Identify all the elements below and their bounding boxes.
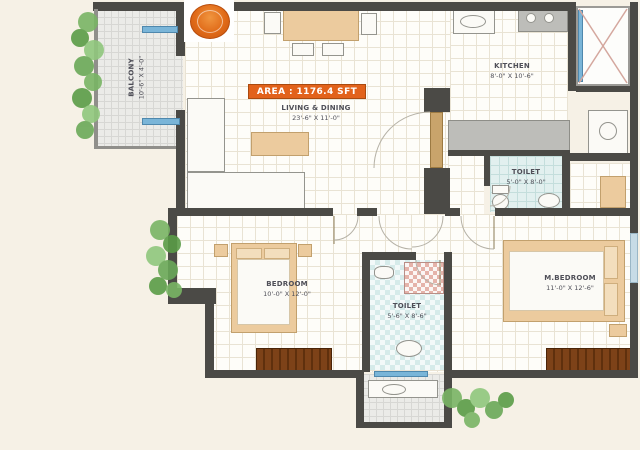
room-dims: 5'-6" X 8'-6" bbox=[368, 312, 446, 321]
wall-under-utility bbox=[562, 153, 630, 161]
foyer-floor bbox=[448, 152, 484, 214]
balcony-wall-left bbox=[94, 9, 98, 148]
room-name: LIVING & DINING bbox=[250, 104, 382, 114]
wall-top bbox=[93, 2, 576, 11]
wall-mid-2 bbox=[357, 208, 377, 216]
wall-utility-left bbox=[356, 370, 364, 428]
utility-sink bbox=[382, 384, 406, 395]
shaft-window bbox=[578, 10, 583, 82]
pillow bbox=[236, 248, 262, 259]
wall-utility-right bbox=[444, 370, 452, 428]
room-label-toilet1: TOILET 5'-0" X 8'-0" bbox=[486, 168, 566, 187]
room-dims: 10'-6" X 4'-0" bbox=[137, 30, 146, 124]
wall-mid-3 bbox=[445, 208, 460, 216]
room-label-master-bedroom: M.BEDROOM 11'-0" X 12'-6" bbox=[505, 274, 635, 293]
wall-mid-4 bbox=[495, 208, 638, 216]
wall-bottom-2 bbox=[452, 370, 638, 378]
kitchen-counter bbox=[448, 120, 570, 152]
room-label-balcony: BALCONY 10'-6" X 4'-0" bbox=[128, 30, 147, 124]
sofa-vertical bbox=[187, 98, 225, 172]
wall-right-outer bbox=[630, 2, 638, 376]
balcony-wall-bottom bbox=[94, 146, 184, 149]
wall-mid-1 bbox=[176, 208, 333, 216]
kitchen-sink-bowl bbox=[460, 15, 486, 28]
wall-bed1-left-upper bbox=[168, 208, 177, 298]
balcony-window bbox=[142, 118, 180, 125]
wall-bottom-1 bbox=[205, 370, 358, 378]
washbasin bbox=[538, 193, 560, 208]
bedside-table bbox=[609, 324, 627, 337]
stove-burner bbox=[544, 13, 554, 23]
wall-entry-top bbox=[424, 88, 450, 112]
coffee-table bbox=[251, 132, 309, 156]
room-label-toilet2: TOILET 5'-6" X 8'-6" bbox=[368, 302, 446, 321]
room-label-kitchen: KITCHEN 8'-0" X 10'-6" bbox=[462, 62, 562, 81]
floor-plan: AREA : 1176.4 SFT LIVING & DINING 23'-6"… bbox=[0, 0, 640, 450]
wall-living-left-bottom bbox=[176, 110, 185, 216]
room-dims: 8'-0" X 10'-6" bbox=[462, 72, 562, 81]
room-dims: 5'-0" X 8'-0" bbox=[486, 178, 566, 187]
balcony-window bbox=[142, 26, 178, 33]
dining-chair bbox=[361, 13, 377, 35]
duct-shaft bbox=[576, 6, 630, 86]
dining-chair bbox=[264, 12, 281, 34]
room-name: KITCHEN bbox=[462, 62, 562, 72]
room-name: TOILET bbox=[486, 168, 566, 178]
dining-chair bbox=[322, 43, 344, 56]
wall-bed1-left-lower bbox=[205, 302, 214, 374]
bedside-table bbox=[298, 244, 312, 257]
room-dims: 10'-0" X 12'-0" bbox=[237, 290, 337, 299]
washbasin bbox=[374, 266, 394, 279]
room-label-living: LIVING & DINING 23'-6" X 11'-0" bbox=[250, 104, 382, 123]
wall-under-counter bbox=[448, 150, 570, 156]
entry-door-leaf bbox=[430, 112, 443, 168]
wall-kitchen-right bbox=[568, 2, 576, 91]
dining-chair bbox=[292, 43, 314, 56]
room-dims: 23'-6" X 11'-0" bbox=[250, 114, 382, 123]
area-banner: AREA : 1176.4 SFT bbox=[248, 84, 366, 99]
dresser bbox=[600, 176, 626, 208]
room-name: BEDROOM bbox=[237, 280, 337, 290]
stove-burner bbox=[526, 13, 536, 23]
wall-toilet2-top bbox=[362, 252, 416, 260]
bedside-table bbox=[214, 244, 228, 257]
shower-area bbox=[404, 262, 444, 294]
room-name: BALCONY bbox=[128, 30, 138, 124]
room-name: TOILET bbox=[368, 302, 446, 312]
wall-utility-bottom bbox=[356, 422, 452, 428]
pillow bbox=[264, 248, 290, 259]
room-name: M.BEDROOM bbox=[505, 274, 635, 284]
washing-machine-door bbox=[599, 122, 617, 140]
builder-logo-ring bbox=[197, 10, 223, 33]
room-dims: 11'-0" X 12'-6" bbox=[505, 284, 635, 293]
exterior-patch bbox=[164, 304, 205, 374]
wc-bowl bbox=[396, 340, 422, 357]
utility-window bbox=[374, 371, 428, 377]
sofa-horizontal bbox=[187, 172, 305, 210]
plant-cluster-bottom bbox=[442, 388, 514, 428]
room-label-bedroom: BEDROOM 10'-0" X 12'-0" bbox=[237, 280, 337, 299]
